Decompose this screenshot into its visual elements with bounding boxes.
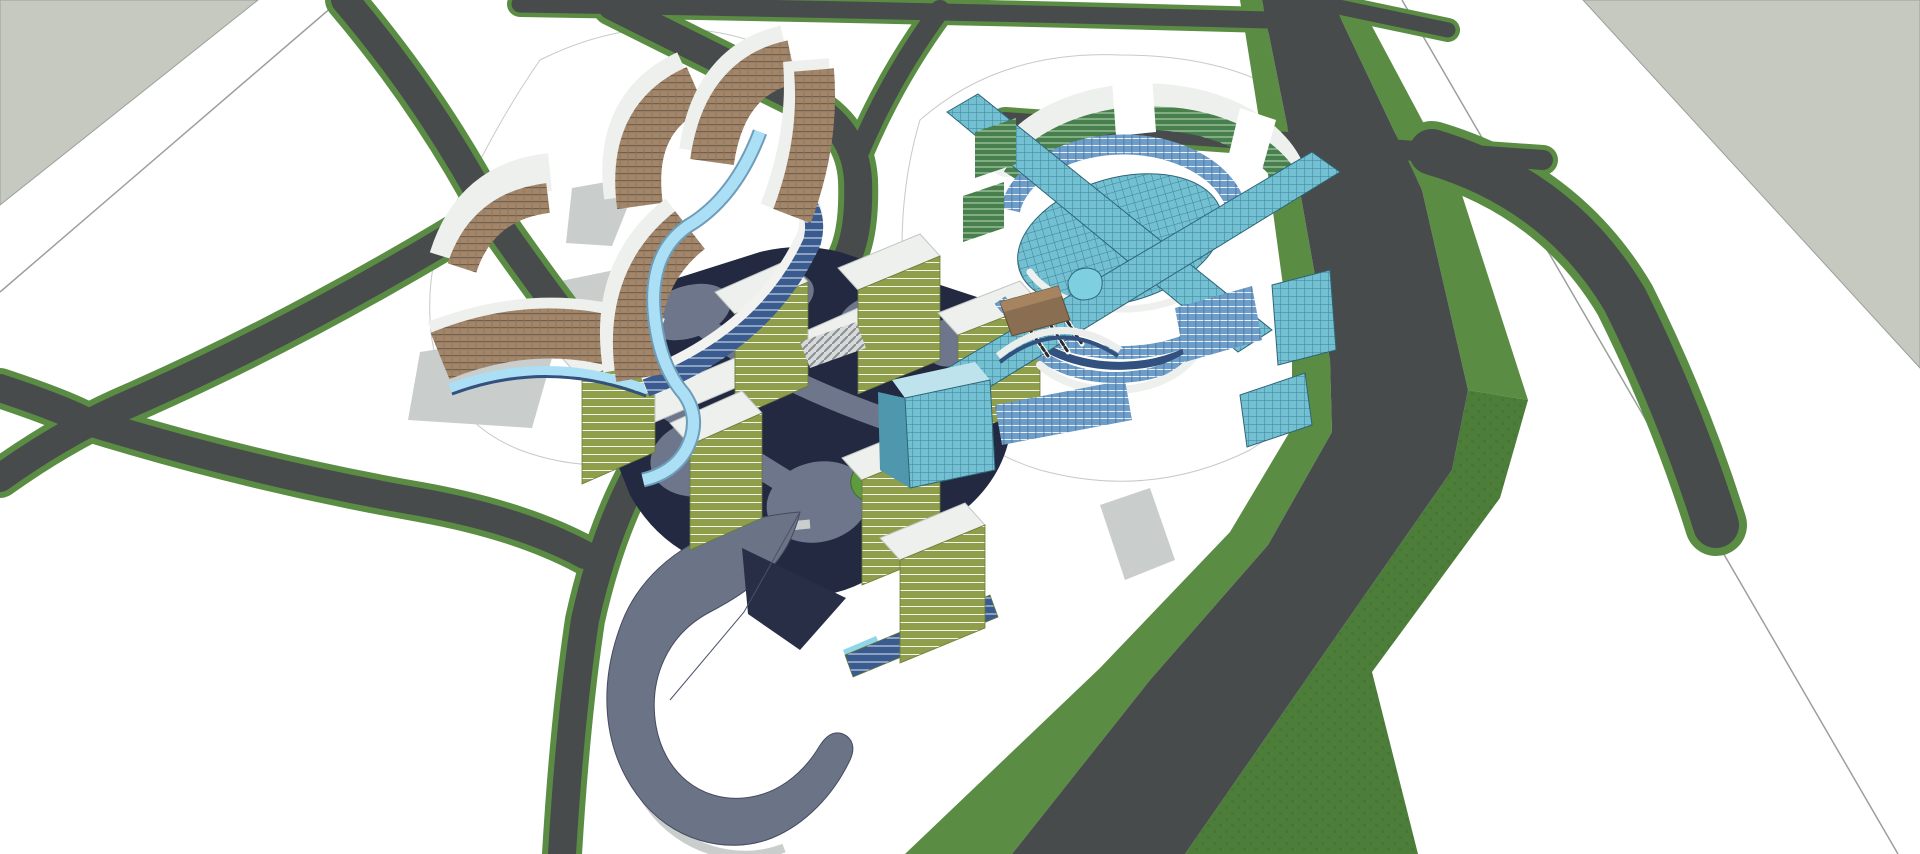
masterplan-render [0,0,1920,854]
east-cube [1272,270,1336,365]
ring-gap [1112,76,1156,136]
rendering-canvas [0,0,1920,854]
tower-brown [792,70,815,216]
sw-pavilion-cube [878,362,995,488]
teal-blob-pond [1068,268,1102,300]
